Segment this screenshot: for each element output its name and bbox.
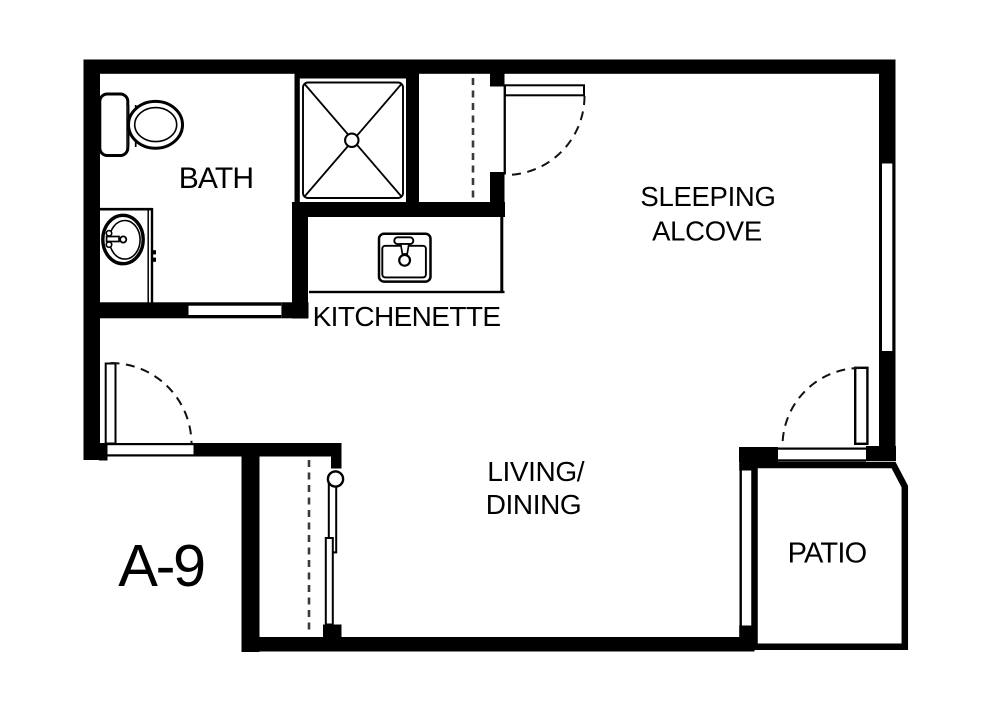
svg-text:A-9: A-9: [118, 532, 204, 599]
svg-text:DINING: DINING: [486, 489, 582, 520]
svg-text:ALCOVE: ALCOVE: [652, 215, 762, 246]
svg-text:BATH: BATH: [179, 162, 254, 195]
svg-text:SLEEPING: SLEEPING: [640, 181, 775, 212]
svg-text:LIVING/: LIVING/: [487, 456, 584, 487]
svg-text:KITCHENETTE: KITCHENETTE: [313, 301, 501, 332]
svg-text:PATIO: PATIO: [788, 537, 867, 569]
